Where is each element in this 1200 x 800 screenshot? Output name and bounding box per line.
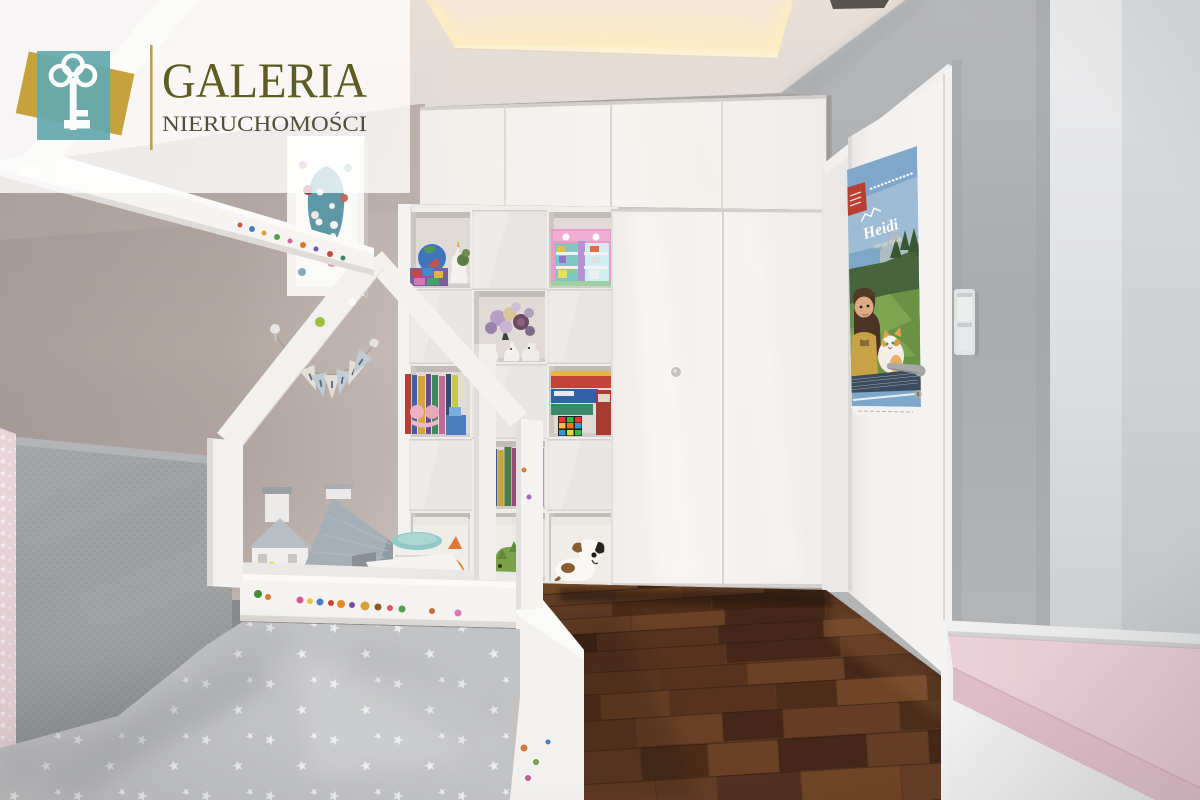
svg-text:GALERIA: GALERIA: [162, 52, 367, 108]
svg-text:NIERUCHOMOŚCI: NIERUCHOMOŚCI: [162, 111, 367, 136]
